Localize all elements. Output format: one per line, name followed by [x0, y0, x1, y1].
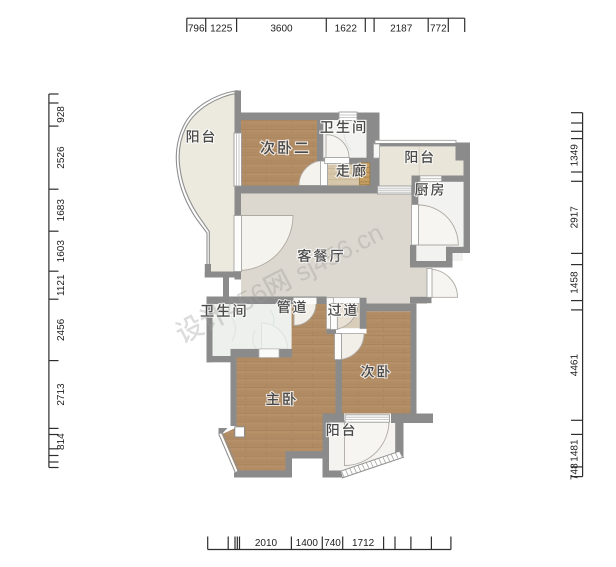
svg-text:2187: 2187 [390, 24, 413, 35]
svg-text:1481: 1481 [570, 439, 581, 462]
svg-text:2917: 2917 [570, 206, 581, 229]
svg-text:4461: 4461 [570, 354, 581, 377]
svg-text:2010: 2010 [255, 538, 278, 549]
svg-text:928: 928 [56, 106, 67, 123]
svg-text:1683: 1683 [56, 199, 67, 222]
svg-text:1400: 1400 [296, 538, 319, 549]
svg-text:2713: 2713 [56, 383, 67, 406]
svg-text:1225: 1225 [210, 24, 233, 35]
svg-text:2456: 2456 [56, 318, 67, 341]
svg-text:1622: 1622 [335, 24, 358, 35]
svg-text:2526: 2526 [56, 146, 67, 169]
svg-text:1603: 1603 [56, 240, 67, 263]
svg-text:772: 772 [430, 24, 447, 35]
svg-text:748: 748 [570, 463, 581, 480]
svg-text:1712: 1712 [352, 538, 375, 549]
svg-text:740: 740 [324, 538, 341, 549]
svg-text:1121: 1121 [56, 274, 67, 296]
svg-text:3600: 3600 [270, 24, 293, 35]
svg-text:796: 796 [188, 24, 205, 35]
svg-text:1349: 1349 [570, 144, 581, 167]
svg-text:1458: 1458 [570, 271, 581, 294]
svg-text:814: 814 [56, 433, 67, 450]
